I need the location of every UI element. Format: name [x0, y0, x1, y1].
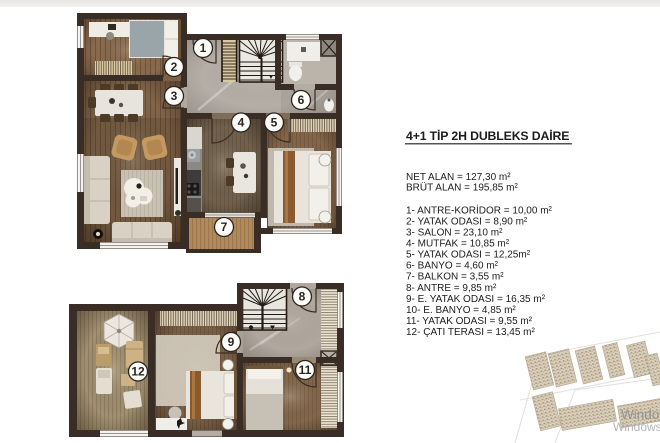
svg-text:9- E. YATAK ODASI = 16,35 m²: 9- E. YATAK ODASI = 16,35 m² — [406, 294, 546, 305]
svg-text:9: 9 — [228, 335, 235, 349]
svg-text:8: 8 — [299, 290, 306, 304]
svg-text:1- ANTRE-KORİDOR = 10,00 m²: 1- ANTRE-KORİDOR = 10,00 m² — [406, 203, 553, 216]
svg-text:7: 7 — [221, 220, 228, 234]
svg-text:12- ÇATI TERASI = 13,45 m²: 12- ÇATI TERASI = 13,45 m² — [406, 327, 536, 338]
svg-text:2- YATAK ODASI = 8,90 m²: 2- YATAK ODASI = 8,90 m² — [406, 217, 528, 228]
svg-text:7- BALKON = 3,55 m²: 7- BALKON = 3,55 m² — [406, 272, 504, 283]
svg-text:11: 11 — [299, 363, 312, 377]
svg-text:11- YATAK ODASI = 9,55 m²: 11- YATAK ODASI = 9,55 m² — [406, 316, 533, 327]
svg-text:4: 4 — [238, 116, 245, 130]
svg-text:BRÜT ALAN = 195,85 m²: BRÜT ALAN = 195,85 m² — [406, 182, 518, 194]
svg-text:3: 3 — [171, 89, 178, 103]
svg-text:4- MUTFAK = 10,85 m²: 4- MUTFAK = 10,85 m² — [406, 239, 510, 250]
svg-text:12: 12 — [131, 365, 145, 379]
svg-text:4+1 TİP 2H DUBLEKS DAİRE: 4+1 TİP 2H DUBLEKS DAİRE — [406, 128, 569, 143]
svg-text:6: 6 — [298, 93, 305, 107]
svg-text:3- SALON = 23,10 m²: 3- SALON = 23,10 m² — [406, 228, 503, 239]
svg-text:2: 2 — [171, 60, 178, 74]
svg-text:1: 1 — [200, 41, 207, 55]
svg-text:5- YATAK ODASI = 12,25m²: 5- YATAK ODASI = 12,25m² — [406, 250, 531, 261]
svg-text:Windows: Windows — [613, 420, 660, 434]
svg-text:NET ALAN = 127,30 m²: NET ALAN = 127,30 m² — [406, 172, 511, 183]
svg-text:10- E. BANYO = 4,85 m²: 10- E. BANYO = 4,85 m² — [406, 305, 516, 316]
svg-text:5: 5 — [271, 116, 278, 130]
svg-text:8- ANTRE = 9,85 m²: 8- ANTRE = 9,85 m² — [406, 283, 497, 294]
svg-text:6- BANYO = 4,60 m²: 6- BANYO = 4,60 m² — [406, 261, 499, 272]
